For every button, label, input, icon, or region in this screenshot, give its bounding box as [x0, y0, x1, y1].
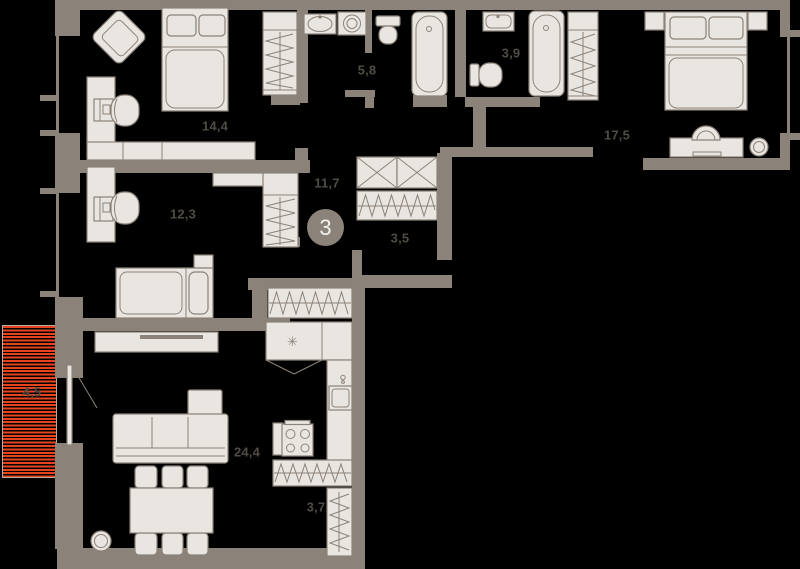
kitchen-counter — [327, 360, 352, 462]
apartment-number-badge: 3 — [307, 209, 344, 246]
area-label-balcony: 4,5 — [23, 385, 42, 400]
desk-chair — [111, 95, 139, 126]
nightstand — [748, 12, 767, 30]
storage-box — [397, 157, 437, 188]
window-bedroom-1 — [40, 36, 59, 136]
area-label-bathroom-2: 3,9 — [502, 46, 521, 61]
area-label-living-kitchen: 24,4 — [234, 445, 260, 460]
chair — [692, 126, 720, 140]
armchair — [91, 9, 148, 66]
toilet — [376, 16, 400, 44]
table — [130, 488, 213, 533]
double-bed — [665, 12, 747, 110]
chair — [135, 533, 157, 555]
bathroom-1-fixtures — [304, 12, 447, 96]
wardrobe — [327, 488, 352, 556]
bedroom-1-furniture — [87, 8, 297, 160]
wardrobe — [263, 12, 297, 95]
monitor — [94, 197, 113, 221]
hall-wardrobe — [568, 12, 598, 100]
desk-chair — [111, 192, 139, 224]
nightstand — [194, 255, 213, 268]
hanging-rail — [357, 191, 437, 220]
double-bed — [162, 8, 228, 111]
stove-counter — [273, 421, 313, 457]
hanging-rail — [273, 460, 352, 486]
chair — [162, 533, 183, 555]
living-room-furniture — [91, 390, 228, 555]
window-bedroom-2 — [40, 188, 59, 297]
washing-machine — [338, 12, 366, 35]
bathtub — [529, 11, 564, 96]
sink — [304, 14, 336, 34]
area-label-closet: 3,7 — [307, 500, 326, 515]
single-bed — [116, 255, 213, 318]
nightstand — [645, 12, 664, 30]
chair — [187, 533, 208, 555]
stove — [282, 424, 313, 456]
tv-console — [95, 332, 218, 352]
area-label-bedroom-1: 14,4 — [202, 119, 228, 134]
window-bedroom-3 — [787, 30, 800, 140]
floor-plan: ✳ — [0, 0, 800, 569]
fridge-icon: ✳ — [287, 335, 298, 350]
dining-table — [130, 466, 213, 555]
toilet — [470, 63, 502, 87]
wardrobe — [263, 173, 298, 247]
dressing-table — [670, 138, 743, 157]
sink — [483, 12, 514, 31]
area-label-bathroom-1: 5,8 — [358, 63, 377, 78]
kitchen-furniture: ✳ — [266, 288, 352, 462]
chair — [187, 466, 208, 488]
area-label-bedroom-2: 12,3 — [170, 207, 196, 222]
sofa — [113, 390, 228, 463]
chair — [135, 466, 157, 488]
storage-box — [357, 157, 397, 188]
area-label-wardrobe: 3,5 — [391, 231, 410, 246]
wardrobe-room-storage — [357, 157, 437, 220]
shelf — [213, 173, 265, 186]
stool — [750, 138, 768, 156]
area-label-hallway: 11,7 — [314, 176, 339, 191]
bathtub — [412, 12, 447, 96]
tv — [140, 335, 203, 339]
stool — [91, 531, 111, 551]
area-label-bedroom-3: 17,5 — [604, 128, 630, 143]
chair — [162, 466, 183, 488]
monitor — [94, 99, 113, 121]
coat-rack — [268, 288, 352, 318]
bedroom-3-furniture — [645, 12, 768, 157]
floor-plan-drawing: ✳ — [0, 0, 800, 569]
